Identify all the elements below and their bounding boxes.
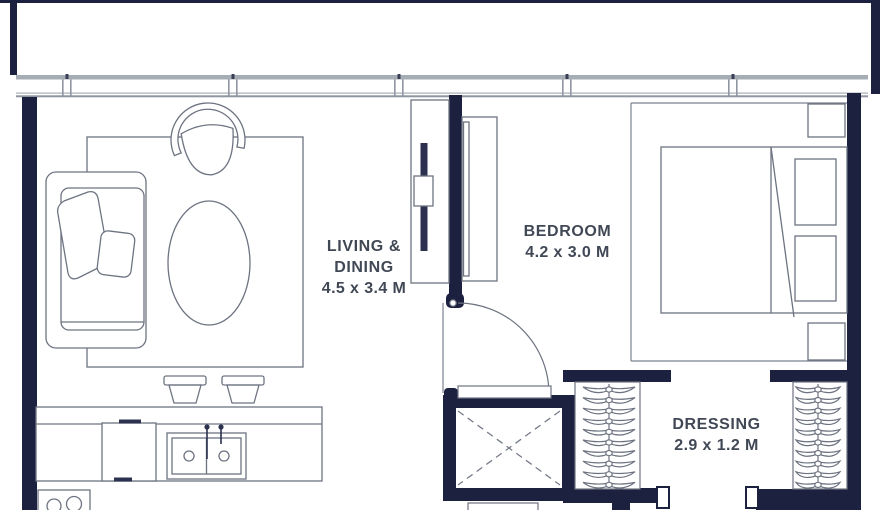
room-dimensions: 2.9 x 1.2 M [654, 435, 779, 456]
door-hinge-pin [450, 300, 456, 306]
kitchen-sink [167, 424, 246, 479]
wall-bottom-a [563, 488, 659, 503]
sofa-pillow-small [96, 230, 135, 278]
window-band [16, 74, 868, 97]
tv-unit-bedroom [462, 117, 497, 281]
room-label-dressing: DRESSING 2.9 x 1.2 M [654, 414, 779, 456]
armchair [167, 99, 248, 178]
kitchen-appliance [102, 420, 156, 482]
wall-living-bedroom [449, 95, 462, 296]
floor-plan: LIVING & DINING 4.5 x 3.4 M BEDROOM 4.2 … [0, 0, 880, 510]
bed [661, 147, 847, 317]
bar-chair-2 [222, 376, 264, 403]
living-room-furniture [46, 99, 449, 367]
wall-balcony-left [10, 0, 17, 75]
nightstand-bottom [808, 323, 845, 360]
tv-bracket [414, 176, 433, 206]
dining-table [168, 201, 250, 325]
room-label-bedroom: BEDROOM 4.2 x 3.0 M [505, 221, 630, 263]
wall-above-left-wardrobe [563, 370, 671, 382]
door-leaf [458, 386, 551, 398]
interior-door [450, 300, 551, 398]
sofa [46, 172, 146, 348]
wall-above-right-wardrobe [770, 370, 853, 382]
room-dimensions: 4.5 x 3.4 M [304, 278, 424, 299]
wall-bottom-b [756, 489, 853, 510]
bar-chair-1 [164, 376, 206, 403]
door-leaf-bottom-cut [468, 503, 538, 510]
door-swing-arc [458, 303, 549, 394]
wall-bottom-stub [612, 488, 630, 510]
wall-left [22, 97, 37, 510]
room-name: DRESSING [654, 414, 779, 435]
door-jambs-bottom [657, 487, 758, 508]
room-dimensions: 4.2 x 3.0 M [505, 242, 630, 263]
kitchen-stove [38, 490, 90, 510]
wall-top-edge [0, 0, 880, 3]
service-shaft [443, 395, 575, 501]
room-name: LIVING & [304, 236, 424, 257]
room-name: DINING [304, 257, 424, 278]
wall-right [847, 93, 861, 510]
wall-balcony-right [871, 0, 880, 94]
room-name: BEDROOM [505, 221, 630, 242]
room-label-living-dining: LIVING & DINING 4.5 x 3.4 M [304, 236, 424, 299]
nightstand-top [808, 104, 845, 137]
kitchen [36, 376, 322, 510]
